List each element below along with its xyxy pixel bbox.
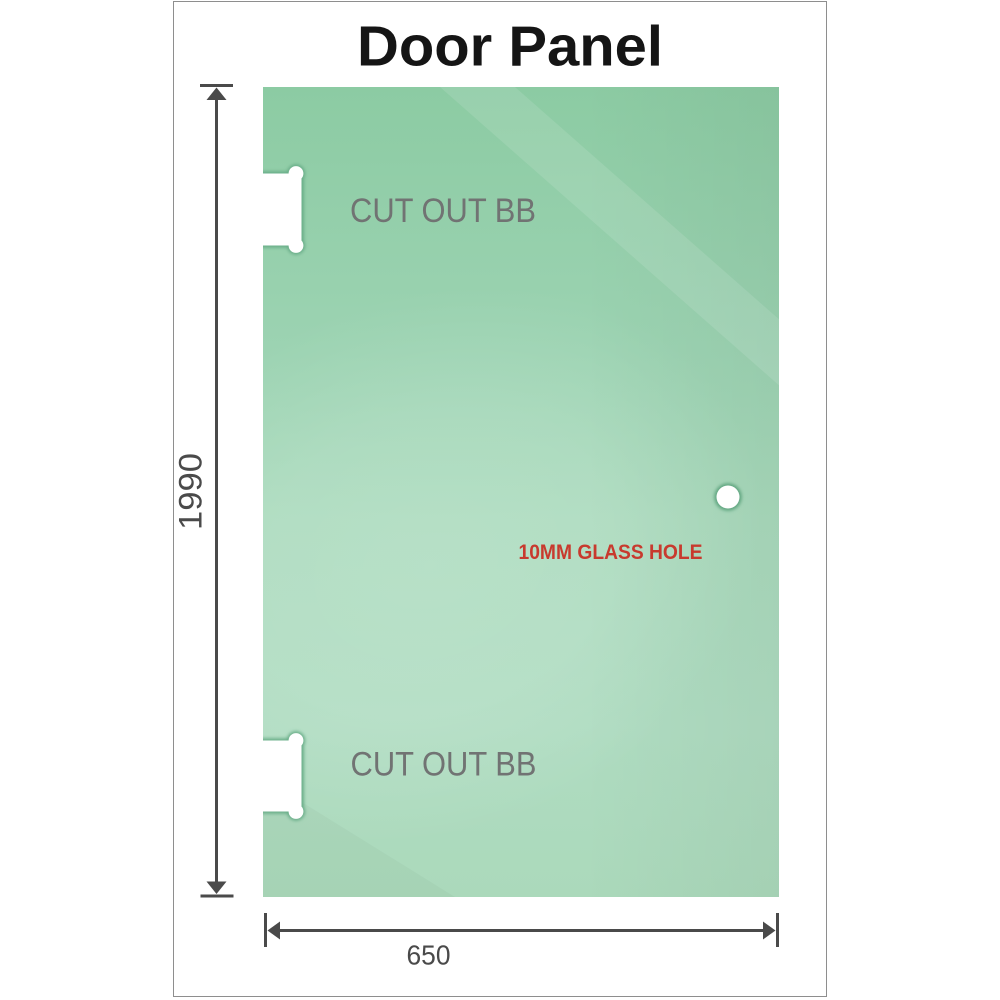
svg-text:CUT OUT BB: CUT OUT BB: [351, 746, 537, 784]
svg-text:Door Panel: Door Panel: [357, 15, 663, 79]
svg-text:650: 650: [407, 940, 451, 971]
svg-text:10MM GLASS HOLE: 10MM GLASS HOLE: [519, 540, 703, 564]
svg-text:1990: 1990: [173, 453, 209, 530]
svg-text:CUT OUT BB: CUT OUT BB: [350, 192, 536, 230]
